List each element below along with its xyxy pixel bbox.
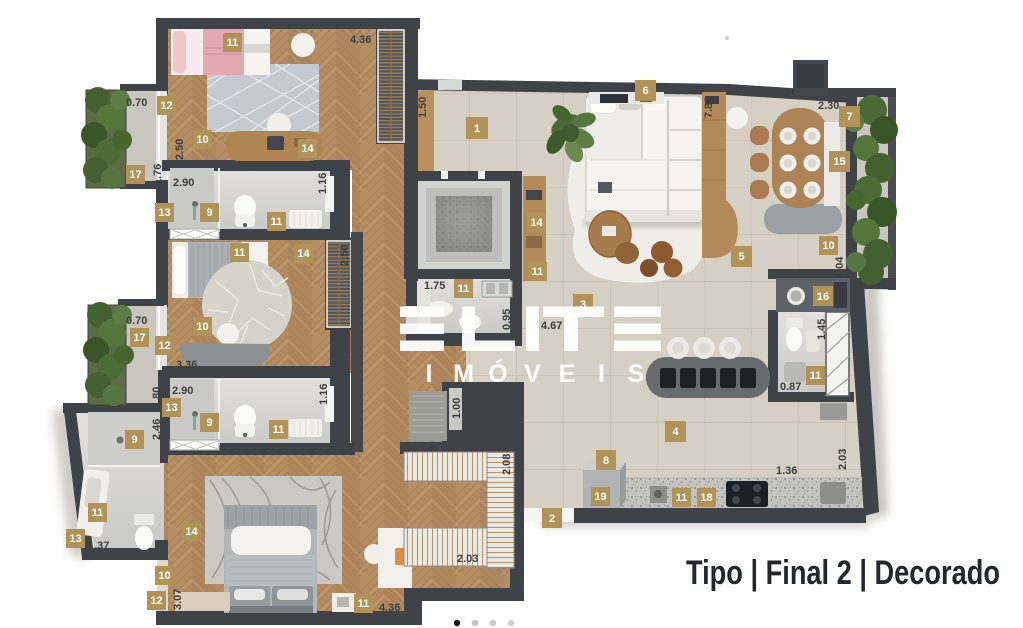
- svg-text:14: 14: [185, 526, 198, 538]
- svg-text:14: 14: [301, 143, 314, 155]
- svg-text:2.30: 2.30: [818, 100, 839, 112]
- svg-text:10: 10: [196, 321, 208, 333]
- svg-text:2.46: 2.46: [151, 419, 163, 440]
- svg-text:12: 12: [150, 595, 162, 607]
- svg-text:5: 5: [738, 251, 744, 263]
- svg-text:4: 4: [672, 426, 679, 438]
- svg-text:1.36: 1.36: [776, 465, 797, 477]
- svg-text:2.08: 2.08: [501, 454, 513, 475]
- svg-text:Tipo | Final 2 | Decorado: Tipo | Final 2 | Decorado: [686, 554, 1000, 592]
- svg-text:1.80: 1.80: [151, 387, 163, 408]
- svg-text:12: 12: [160, 100, 172, 112]
- svg-text:3.36: 3.36: [176, 359, 197, 371]
- svg-text:18: 18: [700, 492, 712, 504]
- svg-text:4.36: 4.36: [379, 602, 400, 614]
- svg-text:0.87: 0.87: [780, 381, 801, 393]
- svg-text:2.03: 2.03: [457, 553, 478, 565]
- svg-text:1.37: 1.37: [88, 540, 109, 552]
- svg-text:0.70: 0.70: [126, 97, 147, 109]
- svg-text:1.00: 1.00: [451, 398, 463, 419]
- svg-text:10: 10: [158, 570, 170, 582]
- svg-text:2: 2: [549, 513, 555, 525]
- svg-text:3.07: 3.07: [172, 589, 184, 610]
- svg-text:1.16: 1.16: [318, 384, 330, 405]
- svg-text:2.90: 2.90: [173, 177, 194, 189]
- svg-text:12: 12: [158, 340, 170, 352]
- svg-text:4.67: 4.67: [541, 320, 562, 332]
- svg-text:15: 15: [833, 156, 845, 168]
- svg-text:13: 13: [165, 402, 177, 414]
- svg-text:17: 17: [129, 169, 141, 181]
- svg-text:11: 11: [458, 283, 470, 295]
- svg-text:11: 11: [234, 247, 246, 259]
- svg-text:11: 11: [273, 424, 285, 436]
- svg-text:11: 11: [676, 492, 688, 504]
- svg-text:11: 11: [532, 266, 544, 278]
- svg-text:V: V: [524, 360, 541, 388]
- svg-text:Ó: Ó: [488, 358, 507, 388]
- svg-text:2.50: 2.50: [174, 139, 186, 160]
- svg-text:7: 7: [846, 111, 852, 123]
- svg-text:2.50: 2.50: [339, 245, 351, 266]
- svg-text:S: S: [628, 360, 645, 388]
- svg-text:1: 1: [474, 123, 480, 135]
- svg-text:1.45: 1.45: [816, 319, 828, 340]
- svg-text:13: 13: [158, 207, 170, 219]
- svg-text:11: 11: [92, 507, 104, 519]
- svg-text:4.04: 4.04: [834, 256, 846, 278]
- svg-text:11: 11: [358, 598, 370, 610]
- svg-text:I: I: [426, 360, 433, 388]
- svg-text:M: M: [453, 360, 474, 388]
- svg-text:11: 11: [810, 370, 822, 382]
- svg-text:7.80: 7.80: [703, 97, 715, 118]
- svg-text:1.76: 1.76: [152, 164, 164, 185]
- svg-text:4.36: 4.36: [350, 34, 371, 46]
- svg-text:17: 17: [133, 332, 145, 344]
- svg-text:0.95: 0.95: [501, 309, 513, 330]
- svg-text:1.16: 1.16: [317, 173, 329, 194]
- svg-text:1.50: 1.50: [417, 97, 429, 118]
- svg-text:0.70: 0.70: [126, 315, 147, 327]
- svg-text:1.75: 1.75: [424, 280, 445, 292]
- svg-text:2.03: 2.03: [837, 449, 849, 470]
- svg-text:16: 16: [817, 291, 829, 303]
- svg-text:14: 14: [297, 248, 310, 260]
- svg-text:11: 11: [227, 37, 239, 49]
- svg-text:E: E: [559, 360, 576, 388]
- svg-text:14: 14: [530, 217, 543, 229]
- svg-text:13: 13: [69, 533, 81, 545]
- svg-text:10: 10: [822, 240, 834, 252]
- svg-text:11: 11: [271, 216, 283, 228]
- svg-text:10: 10: [196, 134, 208, 146]
- svg-text:9: 9: [206, 417, 212, 429]
- svg-text:9: 9: [206, 207, 212, 219]
- svg-text:2.90: 2.90: [172, 385, 193, 397]
- svg-text:6: 6: [642, 85, 648, 97]
- svg-text:9: 9: [131, 434, 137, 446]
- svg-text:8: 8: [603, 455, 609, 467]
- svg-text:I: I: [598, 360, 605, 388]
- svg-text:19: 19: [594, 491, 606, 503]
